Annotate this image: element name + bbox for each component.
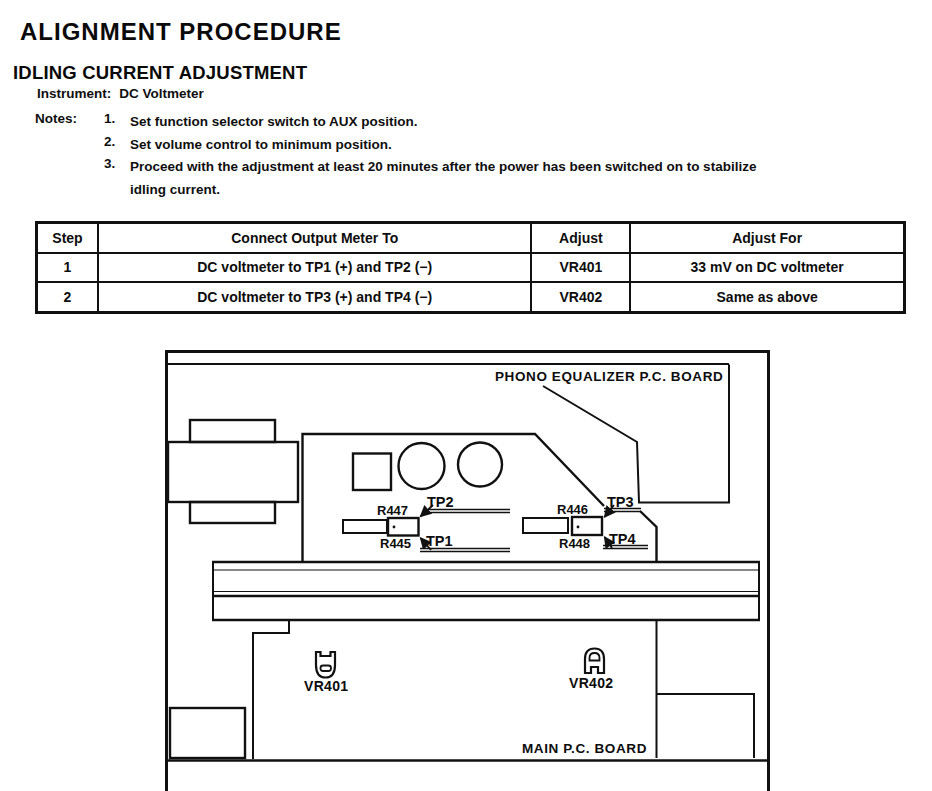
vr401-trimmer-icon xyxy=(316,652,335,678)
board-hole-right xyxy=(458,443,502,487)
note-number: 3. xyxy=(104,156,122,171)
cell-adjust-for: Same as above xyxy=(630,282,904,312)
main-board-left-outline xyxy=(253,621,289,759)
r446-label: R446 xyxy=(557,502,588,517)
page-title: ALIGNMENT PROCEDURE xyxy=(20,18,342,46)
heatsink-bar xyxy=(212,562,760,620)
r448-label: R448 xyxy=(559,536,590,551)
r445-label: R445 xyxy=(380,536,411,551)
bottom-left-component xyxy=(170,708,245,758)
cell-adjust-for: 33 mV on DC voltmeter xyxy=(630,253,904,283)
instrument-value: DC Voltmeter xyxy=(119,86,204,101)
board-hole-left xyxy=(399,443,445,489)
col-header-adjust-for: Adjust For xyxy=(630,223,904,253)
vr401-label: VR401 xyxy=(304,678,348,694)
note-item-3: 3.Proceed with the adjustment at least 2… xyxy=(104,156,870,201)
equalizer-board-outline-right xyxy=(640,511,657,562)
phono-board-label: PHONO EQUALIZER P.C. BOARD xyxy=(495,369,723,384)
section-title: IDLING CURRENT ADJUSTMENT xyxy=(13,62,307,84)
note-item-2: 2.Set volume control to minimum position… xyxy=(104,134,870,157)
note-text-line2: idling current. xyxy=(130,182,220,197)
table-row: 2 DC voltmeter to TP3 (+) and TP4 (−) VR… xyxy=(37,282,905,312)
note-number: 1. xyxy=(104,111,122,126)
phono-board-outline xyxy=(543,365,729,503)
instrument-row: Instrument:DC Voltmeter xyxy=(37,86,204,101)
adjustment-table: Step Connect Output Meter To Adjust Adju… xyxy=(35,221,906,314)
cell-step: 2 xyxy=(37,282,98,312)
instrument-label: Instrument: xyxy=(37,86,111,101)
component-body xyxy=(572,517,602,535)
tp3-label: TP3 xyxy=(607,494,634,510)
pin-dot xyxy=(393,526,396,529)
vr402-trimmer-icon xyxy=(585,649,604,674)
cell-adjust: VR402 xyxy=(531,282,630,312)
note-text-line1: Proceed with the adjustment at least 20 … xyxy=(130,159,756,174)
main-board-label: MAIN P.C. BOARD xyxy=(522,741,647,756)
col-header-step: Step xyxy=(37,223,98,253)
cell-connect: DC voltmeter to TP1 (+) and TP2 (−) xyxy=(98,253,531,283)
resistor-body xyxy=(343,520,387,533)
main-board-right-outline xyxy=(657,621,755,758)
transformer xyxy=(168,420,298,523)
scanned-service-manual-page: { "page": { "title": "ALIGNMENT PROCEDUR… xyxy=(0,0,932,791)
cell-adjust: VR401 xyxy=(531,253,630,283)
note-text: Set volume control to minimum position. xyxy=(130,134,870,157)
cell-connect: DC voltmeter to TP3 (+) and TP4 (−) xyxy=(98,282,531,312)
pin-dot xyxy=(577,526,580,529)
cell-step: 1 xyxy=(37,253,98,283)
col-header-connect: Connect Output Meter To xyxy=(98,223,531,253)
board-square-component xyxy=(353,454,391,491)
vr402-label: VR402 xyxy=(569,675,613,691)
note-text: Set function selector switch to AUX posi… xyxy=(130,111,870,134)
pcb-layout-diagram: PHONO EQUALIZER P.C. BOARD MAIN P.C. BOA… xyxy=(163,348,772,791)
resistor-body xyxy=(523,518,568,533)
tp1-flag-line xyxy=(420,549,510,552)
tp4-label: TP4 xyxy=(609,531,636,547)
tp2-flag-line xyxy=(423,510,510,513)
chassis-outline xyxy=(167,352,769,791)
notes-label: Notes: xyxy=(35,111,77,126)
r447-label: R447 xyxy=(377,503,408,518)
tp2-label: TP2 xyxy=(427,494,454,510)
col-header-adjust: Adjust xyxy=(531,223,630,253)
note-text: Proceed with the adjustment at least 20 … xyxy=(130,156,870,201)
tp1-label: TP1 xyxy=(426,533,453,549)
table-header-row: Step Connect Output Meter To Adjust Adju… xyxy=(37,223,905,253)
note-number: 2. xyxy=(104,134,122,149)
component-body xyxy=(388,518,419,536)
note-item-1: 1.Set function selector switch to AUX po… xyxy=(104,111,870,134)
table-row: 1 DC voltmeter to TP1 (+) and TP2 (−) VR… xyxy=(37,253,905,283)
